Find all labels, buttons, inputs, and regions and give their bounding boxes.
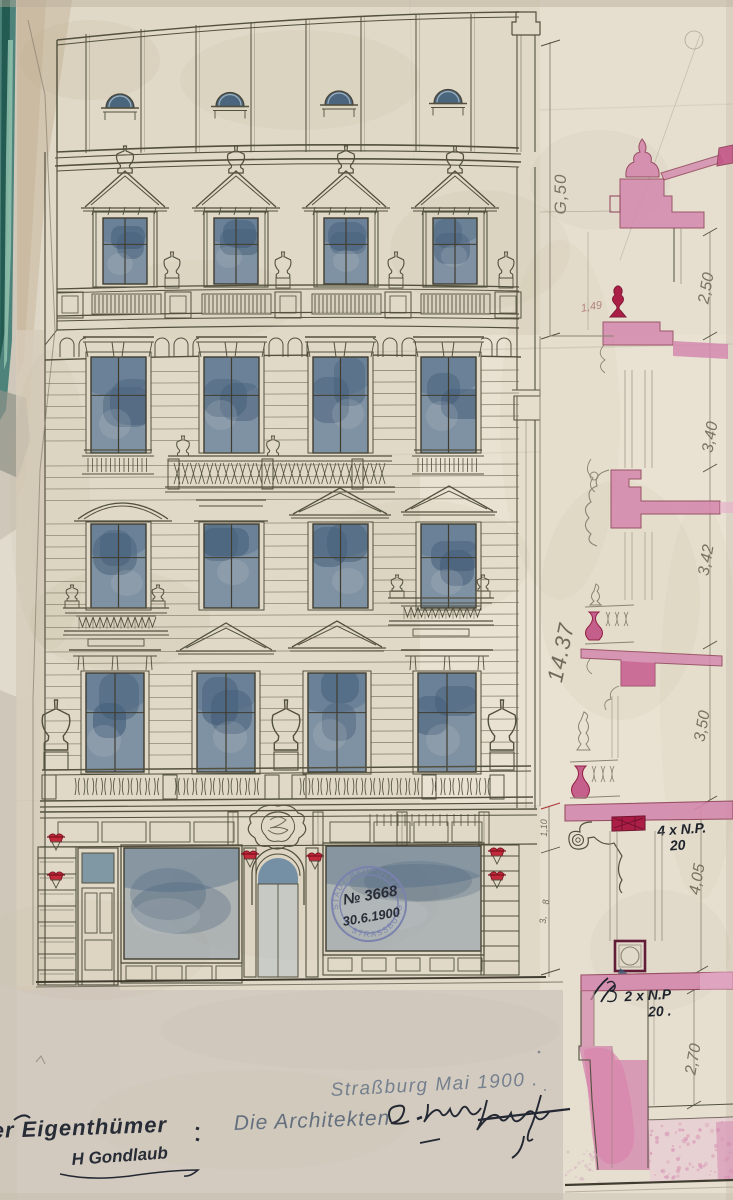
- svg-text:20 .: 20 .: [647, 1002, 672, 1019]
- svg-text:3,: 3,: [538, 916, 548, 924]
- svg-text:8: 8: [541, 899, 551, 904]
- svg-text:1,10: 1,10: [539, 819, 549, 837]
- svg-text:20: 20: [668, 836, 686, 853]
- svg-text:G,50: G,50: [551, 174, 570, 215]
